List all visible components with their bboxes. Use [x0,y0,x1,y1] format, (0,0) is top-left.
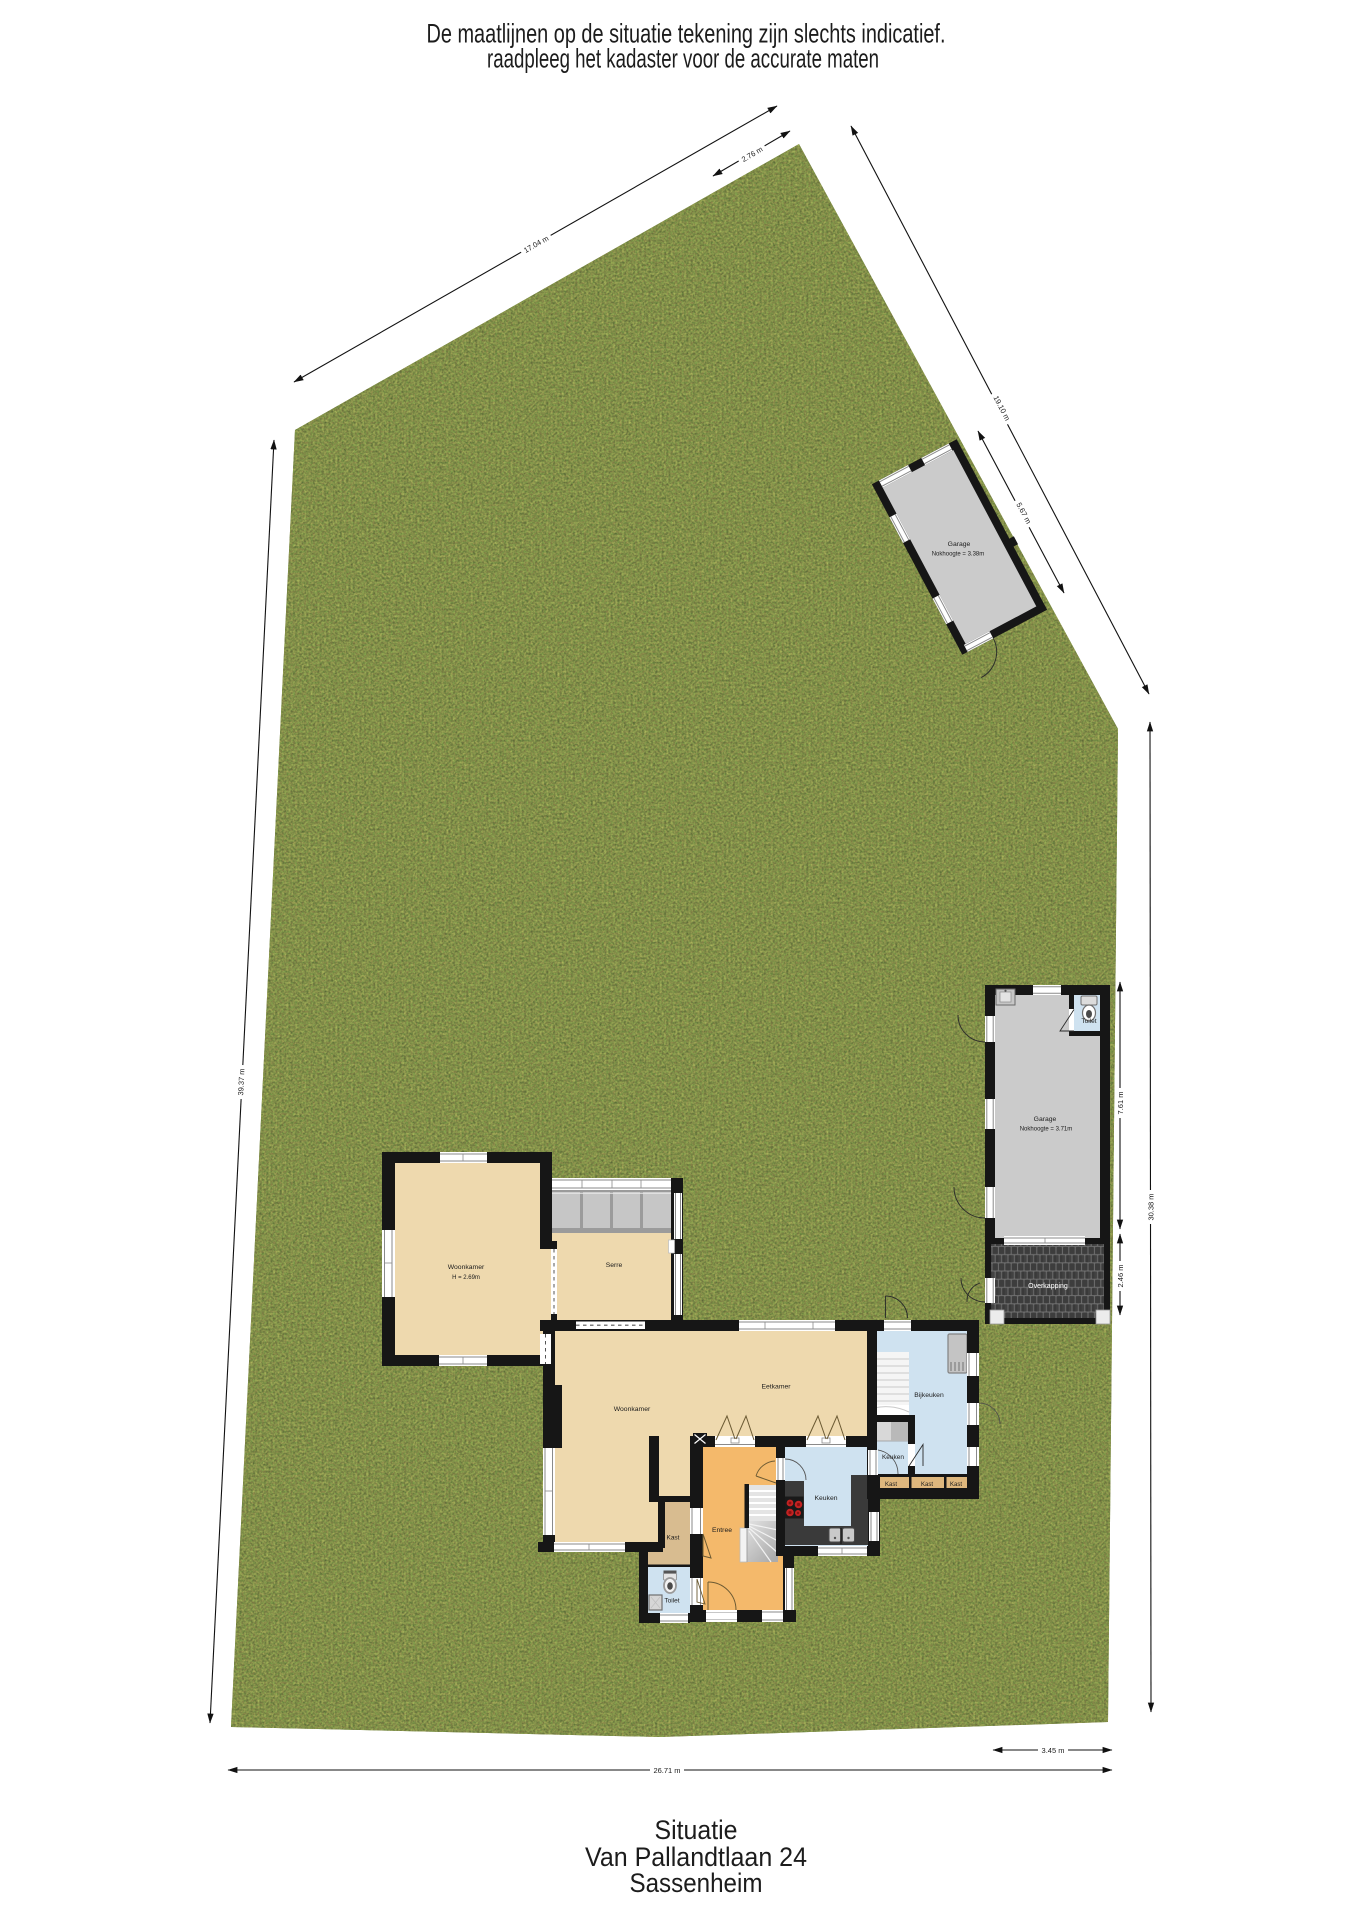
svg-text:H = 2.69m: H = 2.69m [452,1275,480,1281]
svg-text:Eetkamer: Eetkamer [761,1384,791,1391]
svg-text:Entree: Entree [712,1527,732,1534]
svg-text:Kast: Kast [666,1535,679,1542]
svg-text:Serre: Serre [606,1262,623,1269]
svg-text:Keuken: Keuken [814,1495,837,1502]
svg-text:Woonkamer: Woonkamer [614,1406,651,1413]
svg-text:Sassenheim: Sassenheim [630,1868,763,1898]
svg-text:Toilet: Toilet [664,1598,679,1605]
svg-text:Nokhoogte = 3.38m: Nokhoogte = 3.38m [932,552,985,558]
svg-text:39.37 m: 39.37 m [236,1068,246,1096]
svg-text:Garage: Garage [948,541,971,548]
svg-text:5.67 m: 5.67 m [1014,501,1033,525]
svg-text:Kast: Kast [885,1482,897,1488]
svg-text:Garage: Garage [1034,1116,1057,1123]
svg-text:7.61 m: 7.61 m [1116,1092,1125,1115]
svg-text:2.76 m: 2.76 m [740,145,764,164]
svg-text:Overkapping: Overkapping [1028,1283,1068,1290]
svg-text:Bijkeuken: Bijkeuken [914,1392,944,1399]
svg-text:2.46 m: 2.46 m [1116,1265,1125,1288]
svg-text:raadpleeg het kadaster voor de: raadpleeg het kadaster voor de accurate … [487,44,879,74]
svg-text:30.38 m: 30.38 m [1146,1193,1155,1220]
svg-text:Woonkamer: Woonkamer [448,1264,485,1271]
svg-text:Situatie: Situatie [655,1815,738,1845]
svg-text:Kast: Kast [921,1482,933,1488]
svg-text:Keuken: Keuken [882,1454,904,1461]
svg-text:3.45 m: 3.45 m [1042,1746,1065,1755]
svg-text:Toilet: Toilet [1081,1018,1096,1025]
svg-text:26.71 m: 26.71 m [653,1766,680,1775]
svg-text:17.04 m: 17.04 m [522,234,550,255]
svg-text:Kast: Kast [950,1482,962,1488]
svg-text:Nokhoogte = 3.71m: Nokhoogte = 3.71m [1020,1127,1073,1133]
